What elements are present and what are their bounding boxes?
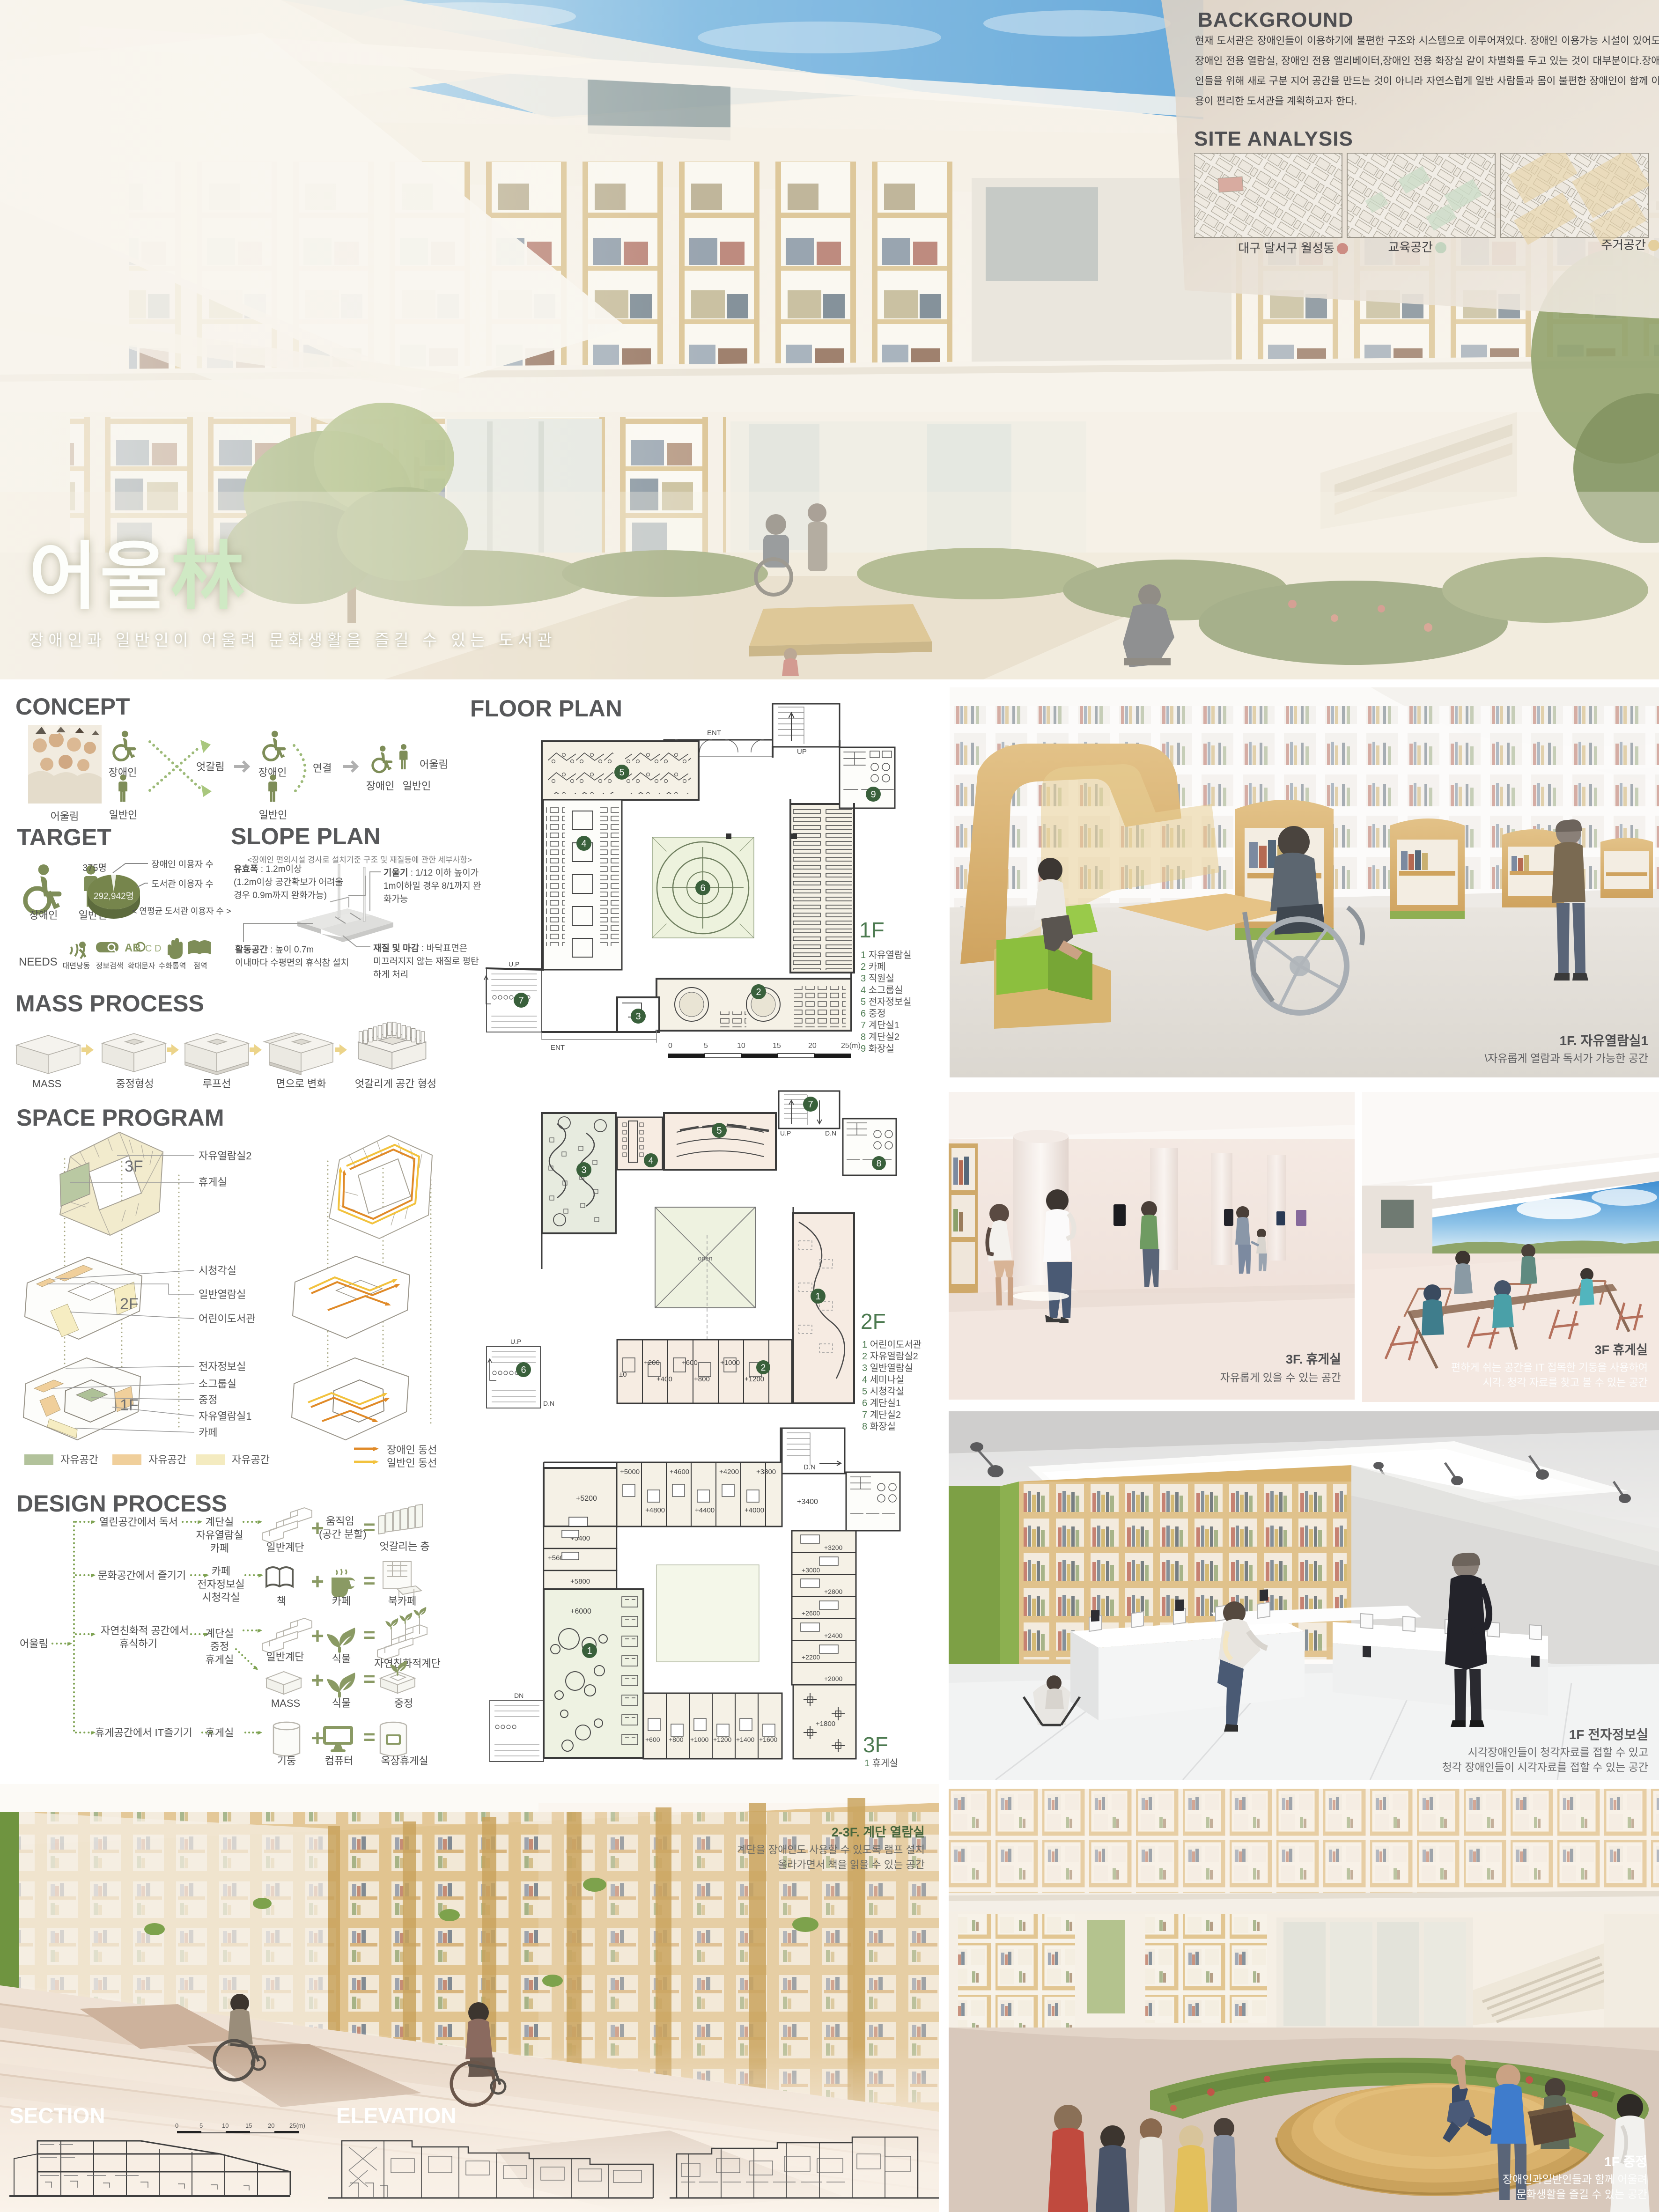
svg-text:자유공간: 자유공간 [148, 1454, 186, 1466]
svg-text:U.P: U.P [780, 1129, 791, 1137]
svg-text:휴식하기: 휴식하기 [119, 1638, 157, 1650]
svg-text:열린공간에서 독서: 열린공간에서 독서 [99, 1516, 178, 1528]
svg-text:전자정보실: 전자정보실 [197, 1578, 244, 1590]
svg-text:2 카페: 2 카페 [861, 961, 886, 972]
svg-text:1: 1 [587, 1646, 592, 1656]
svg-text:엇갈리게 공간 형성: 엇갈리게 공간 형성 [355, 1078, 436, 1090]
svg-text:C D: C D [145, 944, 161, 954]
svg-text:3F 휴게실: 3F 휴게실 [1594, 1343, 1648, 1357]
svg-text:5: 5 [619, 767, 624, 778]
svg-text:3: 3 [581, 1165, 586, 1175]
svg-text:D.N: D.N [804, 1463, 816, 1471]
svg-text:=: = [363, 1516, 376, 1539]
svg-text:SLOPE PLAN: SLOPE PLAN [231, 823, 380, 849]
svg-text:엇갈림: 엇갈림 [196, 761, 225, 773]
svg-text:MASS: MASS [32, 1078, 61, 1090]
svg-text:NEEDS: NEEDS [19, 956, 58, 968]
svg-text:+3000: +3000 [802, 1566, 820, 1574]
svg-text:1 휴게실: 1 휴게실 [864, 1758, 898, 1769]
svg-text:3 일반열람실: 3 일반열람실 [862, 1363, 913, 1373]
svg-text:1 어린이도서관: 1 어린이도서관 [862, 1339, 922, 1350]
svg-text:+4000: +4000 [745, 1506, 764, 1514]
svg-text:엇갈리는 층: 엇갈리는 층 [379, 1541, 429, 1552]
svg-text:+1200: +1200 [713, 1736, 732, 1743]
svg-text:+2200: +2200 [802, 1653, 820, 1661]
svg-text:중정: 중정 [199, 1394, 217, 1406]
svg-text:D.N: D.N [543, 1400, 554, 1407]
svg-text:=: = [363, 1667, 376, 1690]
svg-text:25(m): 25(m) [841, 1042, 861, 1050]
svg-text:8: 8 [877, 1159, 882, 1169]
svg-text:어울림: 어울림 [20, 1638, 48, 1650]
svg-text:2-3F. 계단 열람실: 2-3F. 계단 열람실 [832, 1825, 925, 1839]
svg-text:경우 0.9m까지 완화가능): 경우 0.9m까지 완화가능) [234, 890, 327, 900]
svg-text:5 전자정보실: 5 전자정보실 [861, 996, 912, 1007]
svg-text:+4800: +4800 [645, 1506, 665, 1514]
svg-text:SECTION: SECTION [9, 2103, 105, 2128]
svg-text:장애인 이용자 수: 장애인 이용자 수 [151, 859, 214, 870]
svg-text:중정형성: 중정형성 [116, 1078, 154, 1090]
svg-text:2F: 2F [861, 1309, 886, 1334]
svg-text:미끄러지지 않는 재질로 평탄: 미끄러지지 않는 재질로 평탄 [373, 956, 479, 966]
svg-text:편하게 쉬는 공간을 IT 접목한 기둥을 사용하여: 편하게 쉬는 공간을 IT 접목한 기둥을 사용하여 [1451, 1362, 1648, 1373]
svg-text:일반계단: 일반계단 [266, 1651, 304, 1663]
svg-text:+2400: +2400 [824, 1632, 843, 1639]
svg-text:+600: +600 [645, 1736, 660, 1743]
svg-text:2: 2 [761, 1363, 766, 1373]
svg-text:FLOOR PLAN: FLOOR PLAN [470, 695, 622, 722]
svg-text:휴게실: 휴게실 [199, 1176, 227, 1188]
svg-text:장애인 동선: 장애인 동선 [387, 1444, 437, 1456]
svg-text:6 계단실1: 6 계단실1 [862, 1398, 901, 1408]
svg-text:UP: UP [797, 748, 807, 756]
svg-text:대면낭동: 대면낭동 [63, 962, 90, 970]
svg-text:+3200: +3200 [824, 1544, 843, 1551]
svg-text:1F 중정: 1F 중정 [1604, 2154, 1647, 2169]
svg-text:+3800: +3800 [756, 1468, 776, 1476]
svg-text:계단을 장애인도 사용할 수 있도록 램프 설치: 계단을 장애인도 사용할 수 있도록 램프 설치 [737, 1844, 925, 1856]
svg-text:중정: 중정 [394, 1697, 413, 1709]
svg-text:주거공간: 주거공간 [1601, 238, 1646, 252]
svg-text:전자정보실: 전자정보실 [199, 1361, 246, 1372]
svg-text:4: 4 [581, 839, 586, 849]
svg-text:청각 장애인들이 시각자료를 접할 수 있는 공간: 청각 장애인들이 시각자료를 접할 수 있는 공간 [1442, 1761, 1648, 1773]
svg-text:일반열람실: 일반열람실 [199, 1289, 246, 1300]
svg-text:SPACE PROGRAM: SPACE PROGRAM [16, 1105, 224, 1131]
svg-text:재질 및 마감 : 바닥표면은: 재질 및 마감 : 바닥표면은 [373, 943, 467, 953]
svg-text:시청각실: 시청각실 [199, 1265, 236, 1276]
svg-text:수화통역: 수화통역 [159, 962, 186, 970]
svg-text:면으로 변화: 면으로 변화 [276, 1078, 326, 1090]
svg-text:1F 전자정보실: 1F 전자정보실 [1569, 1727, 1648, 1742]
svg-text:open: open [698, 1254, 712, 1262]
svg-text:시청각실: 시청각실 [202, 1592, 240, 1603]
svg-text:+: + [311, 1570, 324, 1594]
svg-text:자유열람실1: 자유열람실1 [199, 1410, 251, 1422]
svg-text:카페: 카페 [199, 1427, 217, 1438]
svg-text:+1000: +1000 [720, 1359, 740, 1367]
svg-text:=: = [363, 1725, 376, 1748]
svg-text:5: 5 [716, 1126, 722, 1136]
svg-text:7: 7 [518, 995, 524, 1006]
svg-text:+: + [311, 1624, 324, 1649]
svg-text:20: 20 [268, 2122, 274, 2129]
svg-text:U.P: U.P [509, 960, 519, 968]
svg-text:휴게실: 휴게실 [206, 1727, 234, 1739]
svg-text:일반인 동선: 일반인 동선 [387, 1457, 437, 1469]
svg-text:+1200: +1200 [745, 1375, 764, 1383]
svg-text:3F: 3F [125, 1158, 143, 1175]
svg-text:6: 6 [521, 1365, 526, 1375]
svg-text:장애인: 장애인 [29, 909, 58, 921]
svg-text:+2600: +2600 [802, 1609, 820, 1617]
svg-text:15: 15 [245, 2122, 252, 2129]
svg-text:10: 10 [222, 2122, 229, 2129]
svg-text:+1400: +1400 [736, 1736, 755, 1743]
svg-text:일반인: 일반인 [403, 780, 431, 792]
svg-text:0: 0 [175, 2122, 178, 2129]
svg-text:시각장애인들이 청각자료를 접할 수 있고: 시각장애인들이 청각자료를 접할 수 있고 [1468, 1746, 1648, 1758]
svg-text:8 계단실2: 8 계단실2 [861, 1032, 900, 1042]
svg-text:+4400: +4400 [695, 1506, 715, 1514]
svg-text:+200: +200 [644, 1359, 660, 1367]
svg-text:3: 3 [635, 1011, 641, 1022]
svg-text:MASS: MASS [271, 1697, 300, 1709]
svg-text:6: 6 [700, 883, 705, 893]
svg-text:20: 20 [808, 1042, 817, 1050]
svg-text:=: = [363, 1623, 376, 1646]
svg-text:+800: +800 [694, 1375, 710, 1383]
svg-text:+4600: +4600 [670, 1468, 689, 1476]
svg-text:25(m): 25(m) [289, 2122, 305, 2129]
svg-text:9: 9 [870, 789, 876, 800]
svg-text:+5800: +5800 [570, 1578, 590, 1585]
svg-text:연결: 연결 [313, 762, 332, 774]
svg-text:루프선: 루프선 [203, 1078, 231, 1090]
svg-text:2 자유열람실2: 2 자유열람실2 [862, 1351, 918, 1362]
svg-text:DESIGN PROCESS: DESIGN PROCESS [16, 1490, 227, 1517]
svg-text:±0: ±0 [619, 1371, 627, 1379]
svg-text:ENT: ENT [551, 1044, 565, 1052]
svg-text:7: 7 [808, 1099, 813, 1110]
svg-text:7 계단실2: 7 계단실2 [862, 1409, 901, 1420]
svg-text:카페: 카페 [210, 1542, 229, 1554]
svg-text:화가능: 화가능 [383, 894, 408, 904]
svg-text:+1600: +1600 [759, 1736, 778, 1743]
svg-text:ENT: ENT [707, 729, 721, 737]
svg-text:1F: 1F [859, 918, 885, 942]
svg-text:TARGET: TARGET [17, 824, 111, 850]
svg-text:+: + [311, 1726, 324, 1751]
svg-text:확대문자: 확대문자 [128, 962, 155, 970]
svg-text:1F. 자유열람실1: 1F. 자유열람실1 [1559, 1033, 1648, 1048]
svg-text:카페: 카페 [212, 1565, 230, 1577]
svg-text:292,942명: 292,942명 [94, 891, 134, 901]
svg-text:식물: 식물 [332, 1697, 351, 1709]
svg-text:+600: +600 [682, 1359, 698, 1367]
svg-text:계단실: 계단실 [206, 1516, 234, 1528]
svg-text:+400: +400 [656, 1375, 672, 1383]
svg-text:컴퓨터: 컴퓨터 [325, 1755, 354, 1767]
svg-text:DN: DN [514, 1692, 524, 1699]
svg-text:유효폭 : 1.2m이상: 유효폭 : 1.2m이상 [234, 864, 302, 874]
svg-text:카페: 카페 [332, 1595, 351, 1607]
svg-text:자연친화적계단: 자연친화적계단 [374, 1658, 441, 1669]
svg-text:중정: 중정 [210, 1641, 229, 1652]
svg-text:\자유롭게 열람과 독서가 가능한 공간: \자유롭게 열람과 독서가 가능한 공간 [1485, 1052, 1648, 1064]
svg-text:어울림: 어울림 [420, 759, 448, 770]
svg-text:도서관 이용자 수: 도서관 이용자 수 [151, 879, 214, 889]
svg-text:대구 달서구 월성동: 대구 달서구 월성동 [1238, 241, 1335, 255]
svg-text:7 계단실1: 7 계단실1 [861, 1020, 900, 1031]
svg-text:계단실: 계단실 [206, 1628, 234, 1639]
svg-text:=: = [363, 1569, 376, 1592]
svg-text:ELEVATION: ELEVATION [336, 2103, 456, 2128]
svg-text:올라가면서 책을 읽을 수 있는 공간: 올라가면서 책을 읽을 수 있는 공간 [778, 1859, 925, 1871]
svg-text:장애인: 장애인 [366, 780, 395, 792]
svg-text:자유공간: 자유공간 [60, 1454, 98, 1466]
svg-text:5: 5 [704, 1042, 708, 1050]
svg-text:휴게실: 휴게실 [206, 1654, 234, 1666]
svg-text:1: 1 [815, 1291, 820, 1302]
svg-text:일반계단: 일반계단 [266, 1541, 304, 1553]
svg-text:(공간 분할): (공간 분할) [319, 1528, 367, 1540]
svg-text:자유롭게 있을 수 있는 공간: 자유롭게 있을 수 있는 공간 [1220, 1371, 1341, 1384]
svg-text:+1000: +1000 [690, 1736, 709, 1743]
svg-text:<장애인 편의시설 경사로 설치기준 구조 및 재질등에: <장애인 편의시설 경사로 설치기준 구조 및 재질등에 관한 세부사항> [247, 855, 472, 864]
svg-text:(1.2m이상 공간확보가 어려울: (1.2m이상 공간확보가 어려울 [234, 877, 343, 887]
svg-text:5: 5 [199, 2122, 203, 2129]
svg-text:+800: +800 [669, 1736, 684, 1743]
svg-text:10: 10 [737, 1042, 745, 1050]
svg-text:D.N: D.N [825, 1129, 836, 1137]
svg-text:+4200: +4200 [719, 1468, 739, 1476]
svg-text:+2000: +2000 [824, 1675, 843, 1682]
svg-text:책: 책 [277, 1595, 286, 1607]
svg-text:3F: 3F [863, 1733, 888, 1757]
svg-text:1 자유열람실: 1 자유열람실 [861, 950, 912, 960]
svg-text:U.P: U.P [510, 1338, 521, 1345]
svg-text:점역: 점역 [193, 962, 207, 970]
svg-text:2: 2 [756, 987, 761, 997]
svg-text:+2800: +2800 [824, 1588, 843, 1595]
svg-text:하게 처리: 하게 처리 [373, 969, 408, 979]
svg-text:기둥: 기둥 [277, 1755, 296, 1767]
svg-text:+1800: +1800 [816, 1720, 835, 1728]
svg-text:이내마다 수평면의 휴식참 설치: 이내마다 수평면의 휴식참 설치 [235, 958, 349, 968]
svg-text:+5000: +5000 [620, 1468, 640, 1476]
svg-text:교육공간: 교육공간 [1388, 240, 1433, 254]
svg-text:15: 15 [773, 1042, 781, 1050]
svg-text:4 소그룹실: 4 소그룹실 [861, 985, 903, 995]
svg-text:자유공간: 자유공간 [232, 1454, 270, 1466]
svg-text:문화공간에서 즐기기: 문화공간에서 즐기기 [98, 1570, 186, 1581]
svg-text:문화생활을 즐길 수 있는 공간: 문화생활을 즐길 수 있는 공간 [1517, 2188, 1647, 2200]
svg-text:자유열람실2: 자유열람실2 [199, 1150, 251, 1162]
svg-text:5 시청각실: 5 시청각실 [862, 1386, 904, 1397]
svg-text:자연친화적 공간에서: 자연친화적 공간에서 [101, 1625, 189, 1637]
svg-text:4: 4 [649, 1156, 654, 1166]
svg-text:소그룹실: 소그룹실 [199, 1378, 236, 1390]
svg-text:9 화장실: 9 화장실 [861, 1043, 894, 1054]
svg-text:3 직원실: 3 직원실 [861, 973, 894, 984]
svg-text:움직임: 움직임 [326, 1515, 354, 1527]
svg-text:북카페: 북카페 [388, 1595, 417, 1607]
svg-text:375명: 375명 [82, 863, 107, 873]
svg-text:옥상휴게실: 옥상휴게실 [381, 1755, 428, 1767]
svg-text:장애인과일반인들과 함께 어울려: 장애인과일반인들과 함께 어울려 [1503, 2173, 1647, 2185]
svg-text:정보검색: 정보검색 [96, 962, 124, 970]
svg-text:휴게공간에서 IT즐기기: 휴게공간에서 IT즐기기 [95, 1727, 192, 1739]
svg-text:4 세미나실: 4 세미나실 [862, 1374, 904, 1385]
svg-text:8 화장실: 8 화장실 [862, 1421, 896, 1432]
svg-text:시각. 청각 자료를 찾고 볼 수 있는 공간: 시각. 청각 자료를 찾고 볼 수 있는 공간 [1483, 1377, 1648, 1388]
svg-text:3F. 휴게실: 3F. 휴게실 [1286, 1352, 1341, 1366]
svg-text:CONCEPT: CONCEPT [15, 693, 130, 720]
svg-text:+: + [311, 1668, 324, 1693]
svg-text:+3400: +3400 [797, 1498, 818, 1506]
svg-text:어린이도서관: 어린이도서관 [199, 1313, 255, 1325]
svg-text:6 중정: 6 중정 [861, 1008, 886, 1019]
svg-text:활동공간 : 높이 0.7m: 활동공간 : 높이 0.7m [235, 944, 314, 955]
svg-text:MASS PROCESS: MASS PROCESS [15, 990, 204, 1017]
svg-text:0: 0 [668, 1042, 672, 1050]
svg-text:식물: 식물 [332, 1653, 351, 1665]
svg-text:자유열람실: 자유열람실 [196, 1529, 243, 1541]
svg-text:+5200: +5200 [576, 1495, 597, 1503]
svg-text:+6000: +6000 [570, 1607, 591, 1615]
svg-text:< 연평균 도서관 이용자 수 >: < 연평균 도서관 이용자 수 > [132, 907, 231, 916]
svg-text:2F: 2F [120, 1295, 139, 1313]
svg-text:1F: 1F [120, 1396, 139, 1414]
